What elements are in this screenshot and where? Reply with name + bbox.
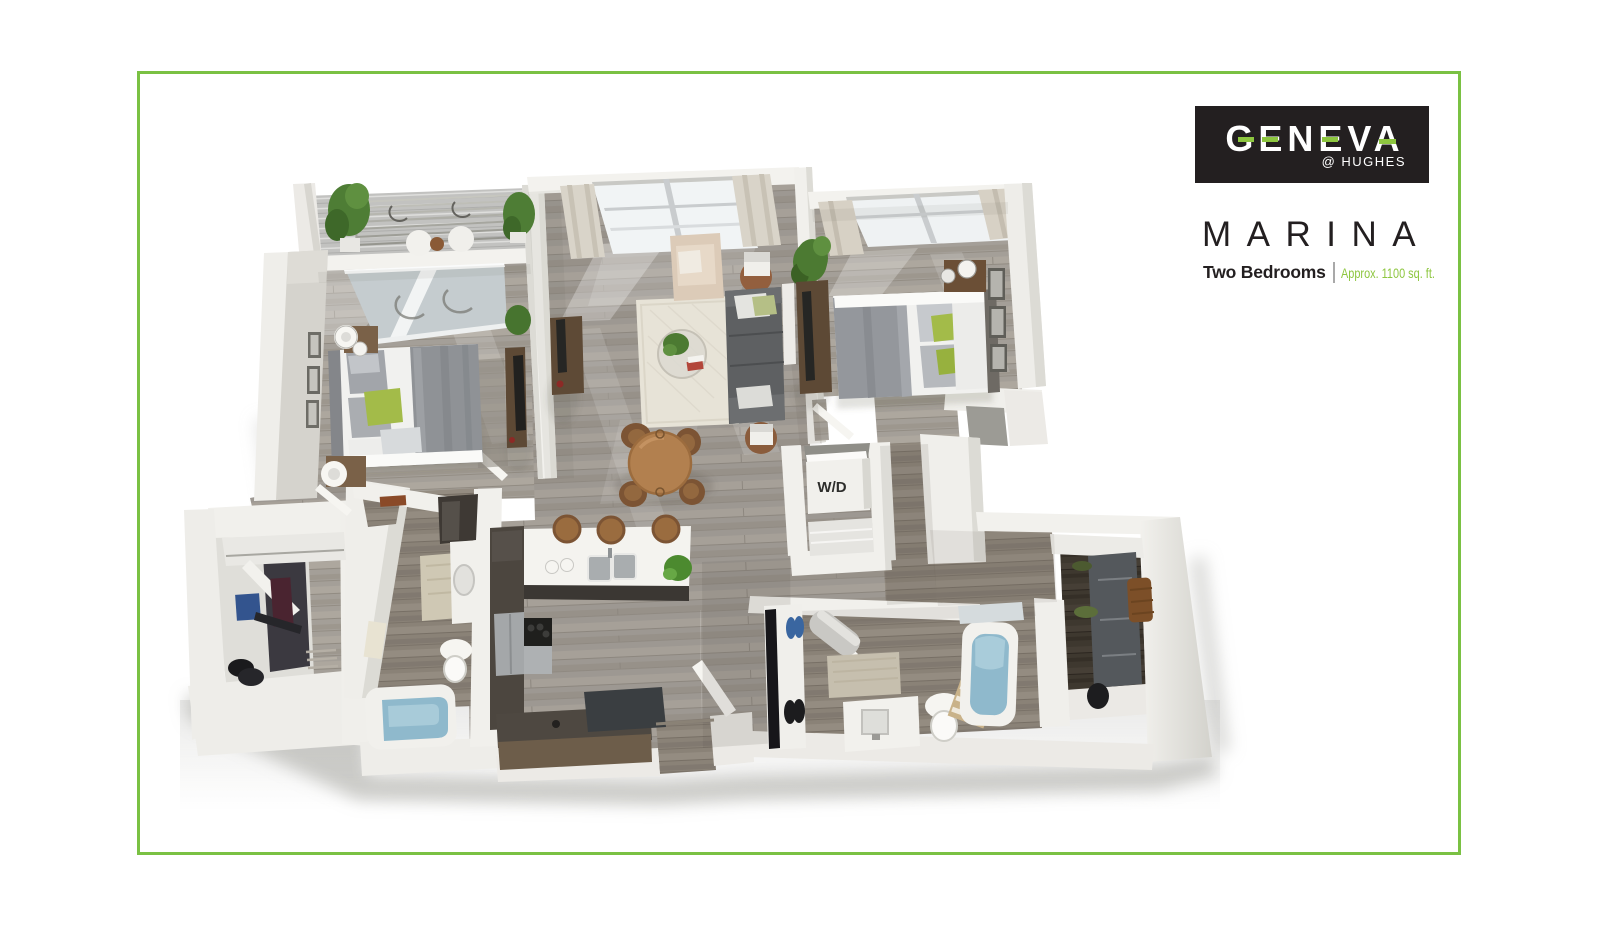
svg-text:W/D: W/D (817, 479, 846, 496)
